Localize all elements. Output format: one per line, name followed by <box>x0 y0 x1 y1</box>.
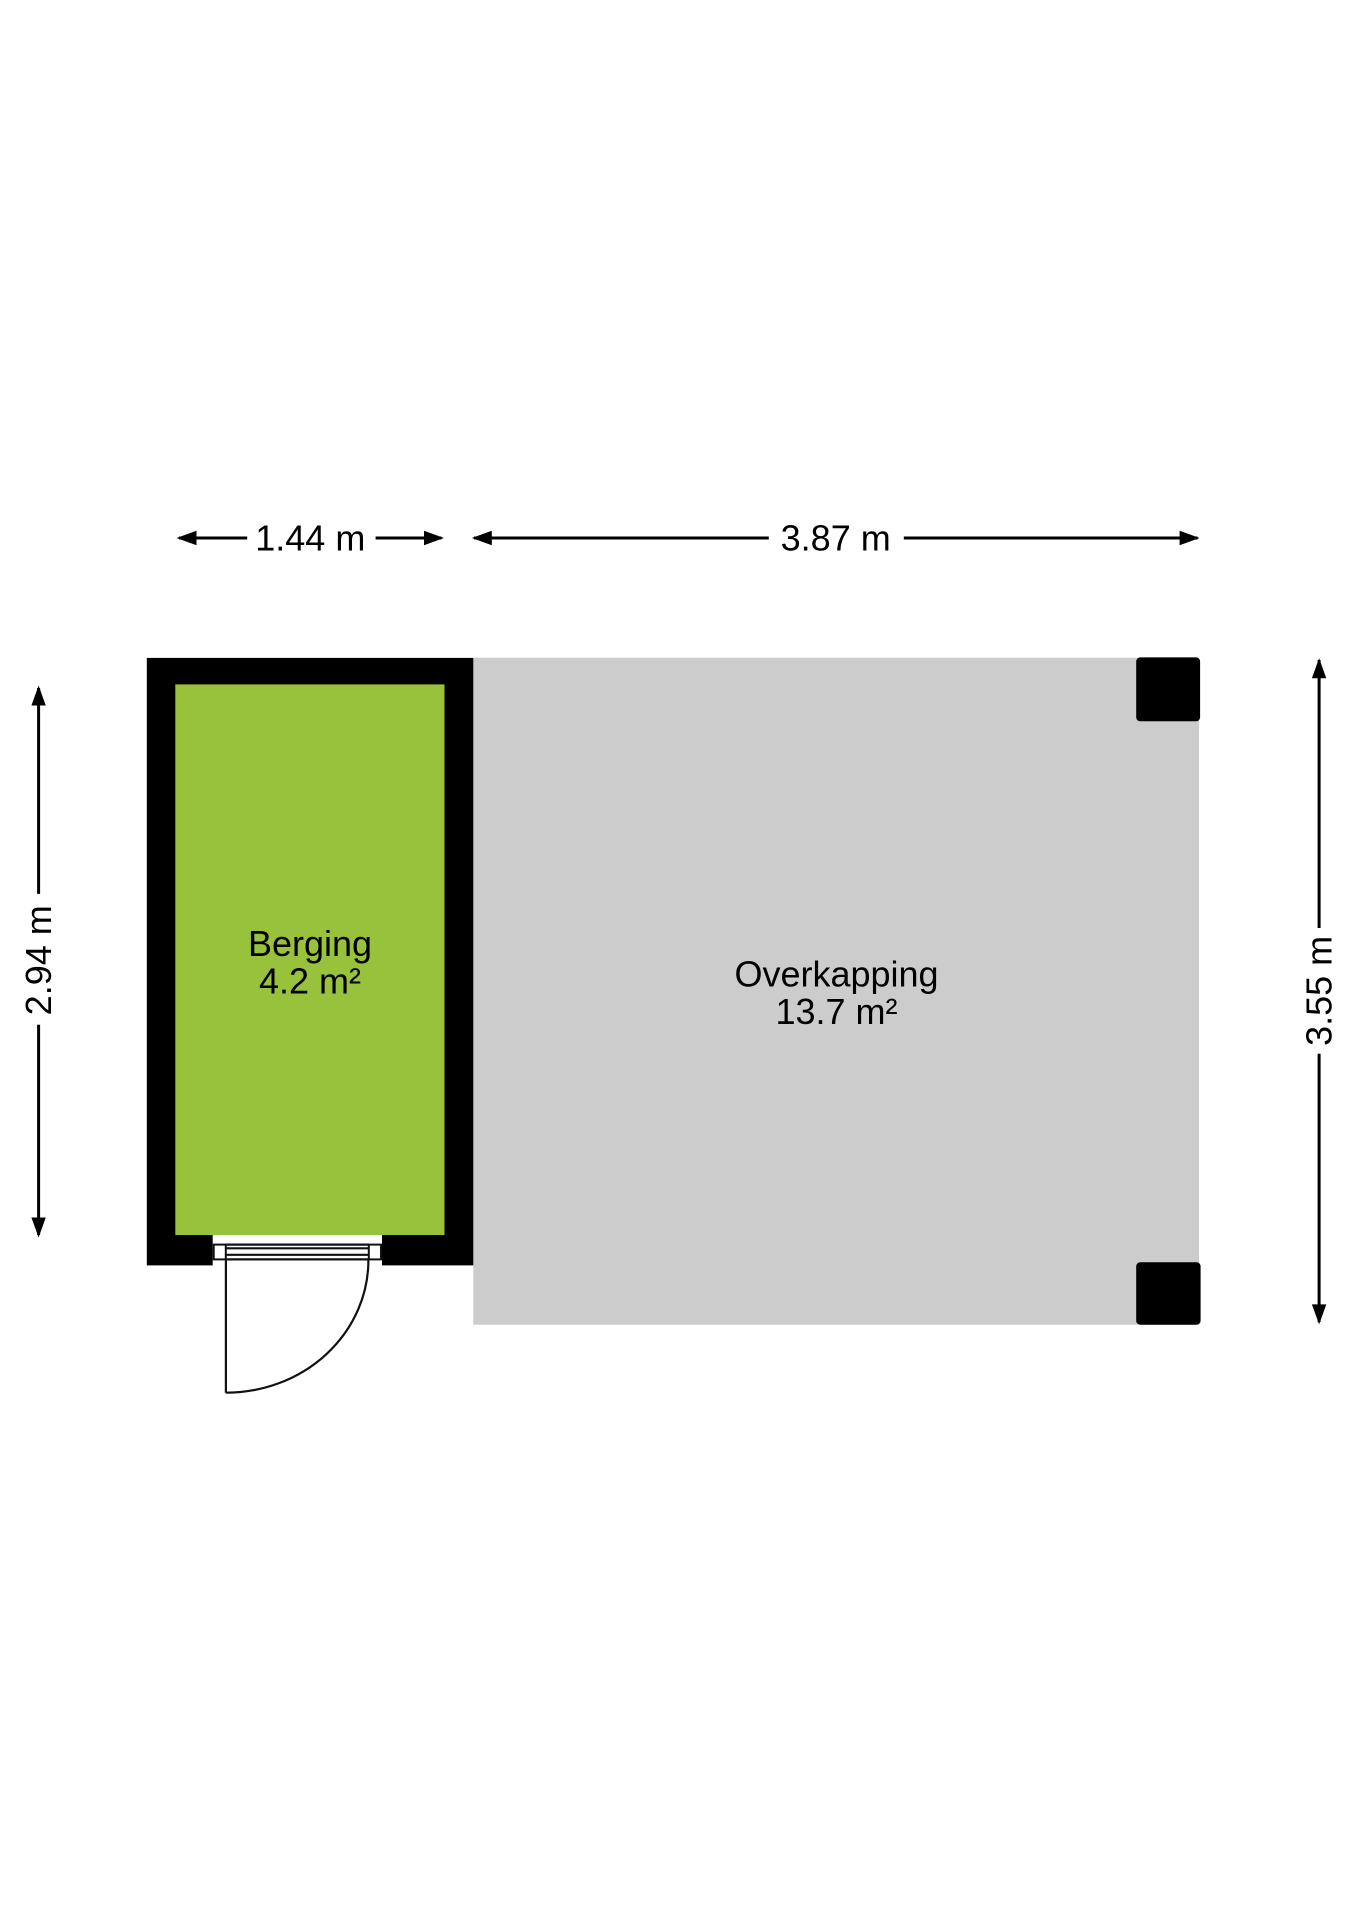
svg-text:Berging: Berging <box>248 923 372 964</box>
svg-text:3.87 m: 3.87 m <box>781 518 891 559</box>
svg-text:2.94 m: 2.94 m <box>18 905 59 1015</box>
svg-text:3.55 m: 3.55 m <box>1299 936 1340 1046</box>
svg-text:Overkapping: Overkapping <box>734 954 938 995</box>
svg-text:13.7 m²: 13.7 m² <box>775 991 897 1032</box>
svg-text:1.44 m: 1.44 m <box>255 518 365 559</box>
svg-text:4.2 m²: 4.2 m² <box>259 960 361 1001</box>
